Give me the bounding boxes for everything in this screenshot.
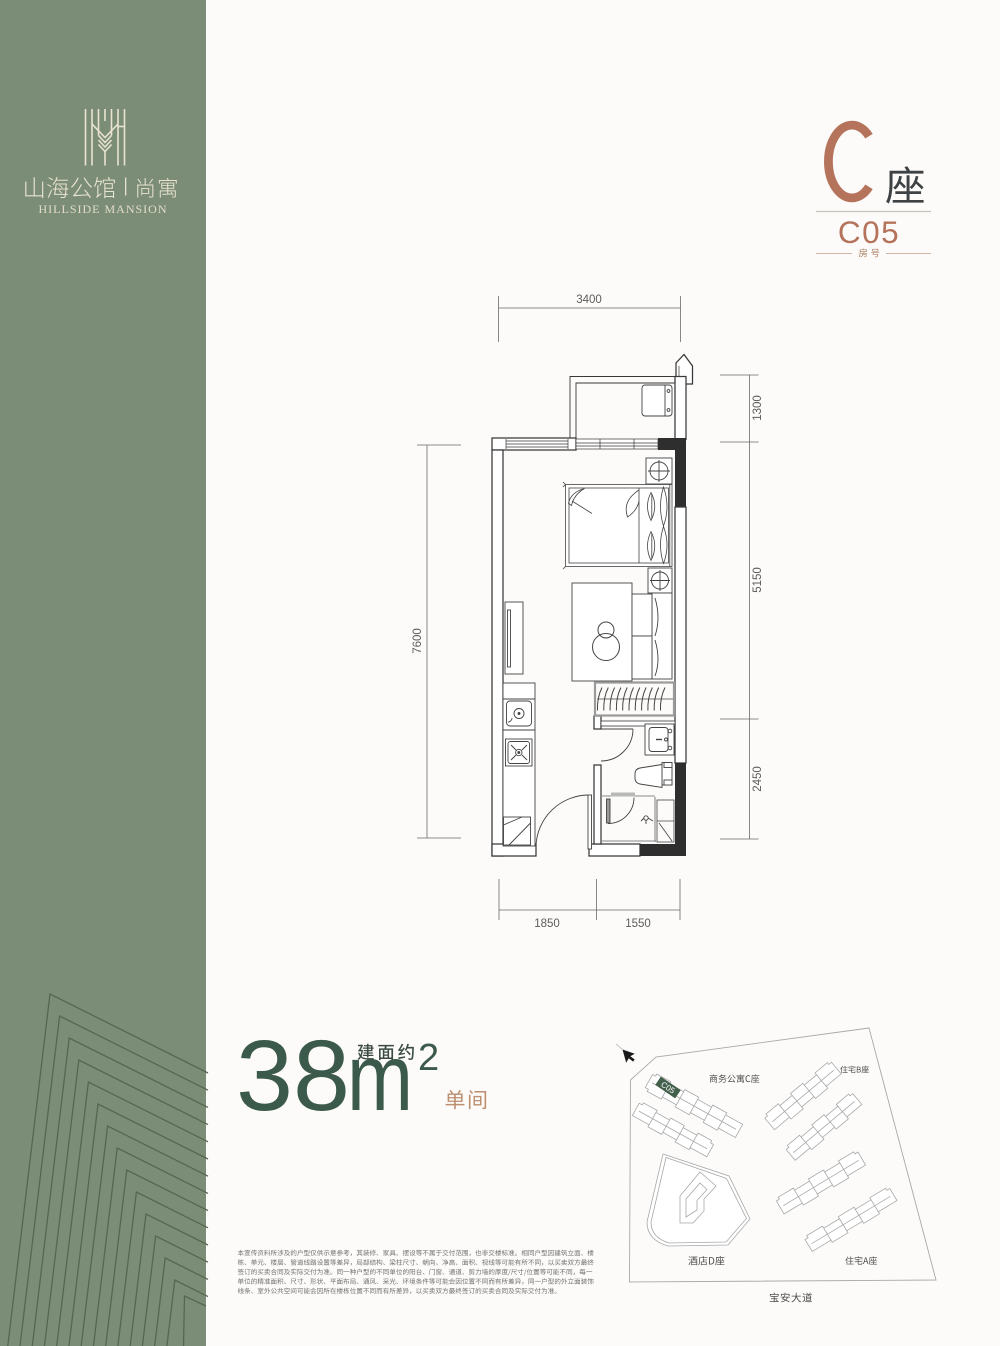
svg-text:1850: 1850	[534, 918, 560, 930]
svg-text:2: 2	[418, 1037, 439, 1079]
svg-text:C05: C05	[838, 214, 900, 250]
svg-text:38: 38	[236, 1020, 350, 1132]
svg-text:5150: 5150	[752, 567, 764, 593]
svg-text:3400: 3400	[576, 294, 602, 306]
svg-text:1300: 1300	[752, 395, 764, 421]
svg-text:1550: 1550	[625, 918, 651, 930]
svg-text:2450: 2450	[752, 766, 764, 792]
svg-text:7600: 7600	[412, 628, 424, 654]
svg-text:m: m	[347, 1025, 413, 1131]
